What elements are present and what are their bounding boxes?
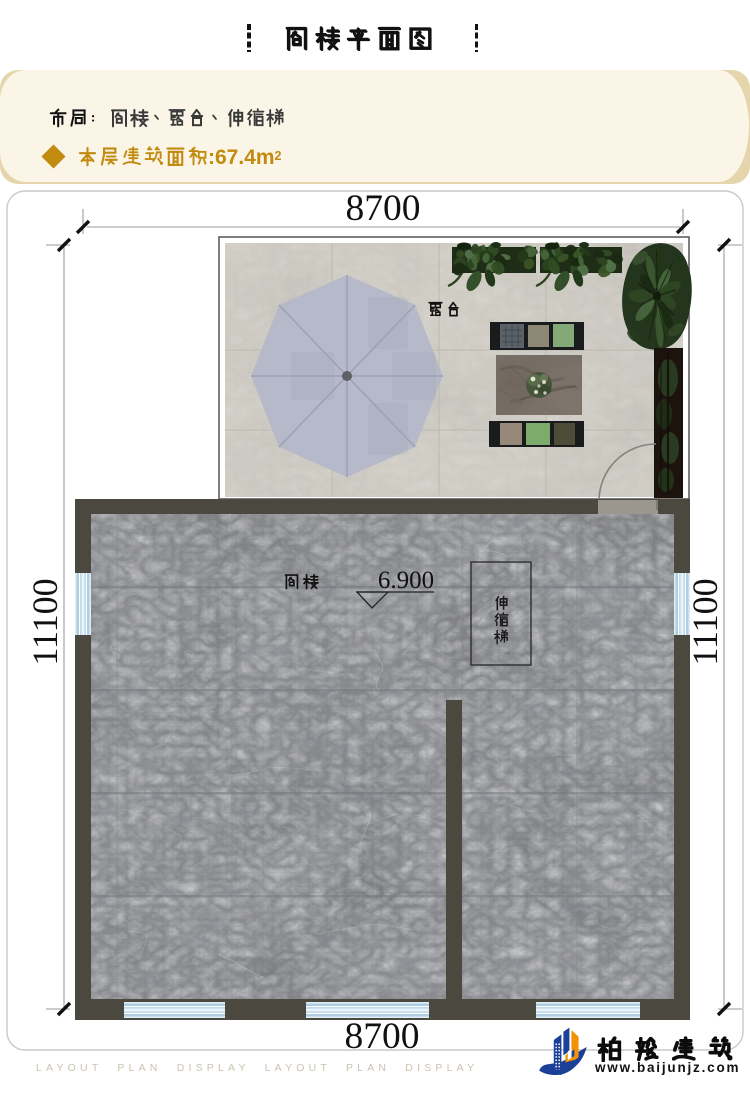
svg-text:8700: 8700 bbox=[346, 188, 421, 229]
svg-text:11100: 11100 bbox=[685, 578, 725, 665]
svg-text:11100: 11100 bbox=[25, 578, 65, 665]
svg-text:6.900: 6.900 bbox=[378, 567, 434, 594]
svg-text:8700: 8700 bbox=[345, 1016, 420, 1057]
